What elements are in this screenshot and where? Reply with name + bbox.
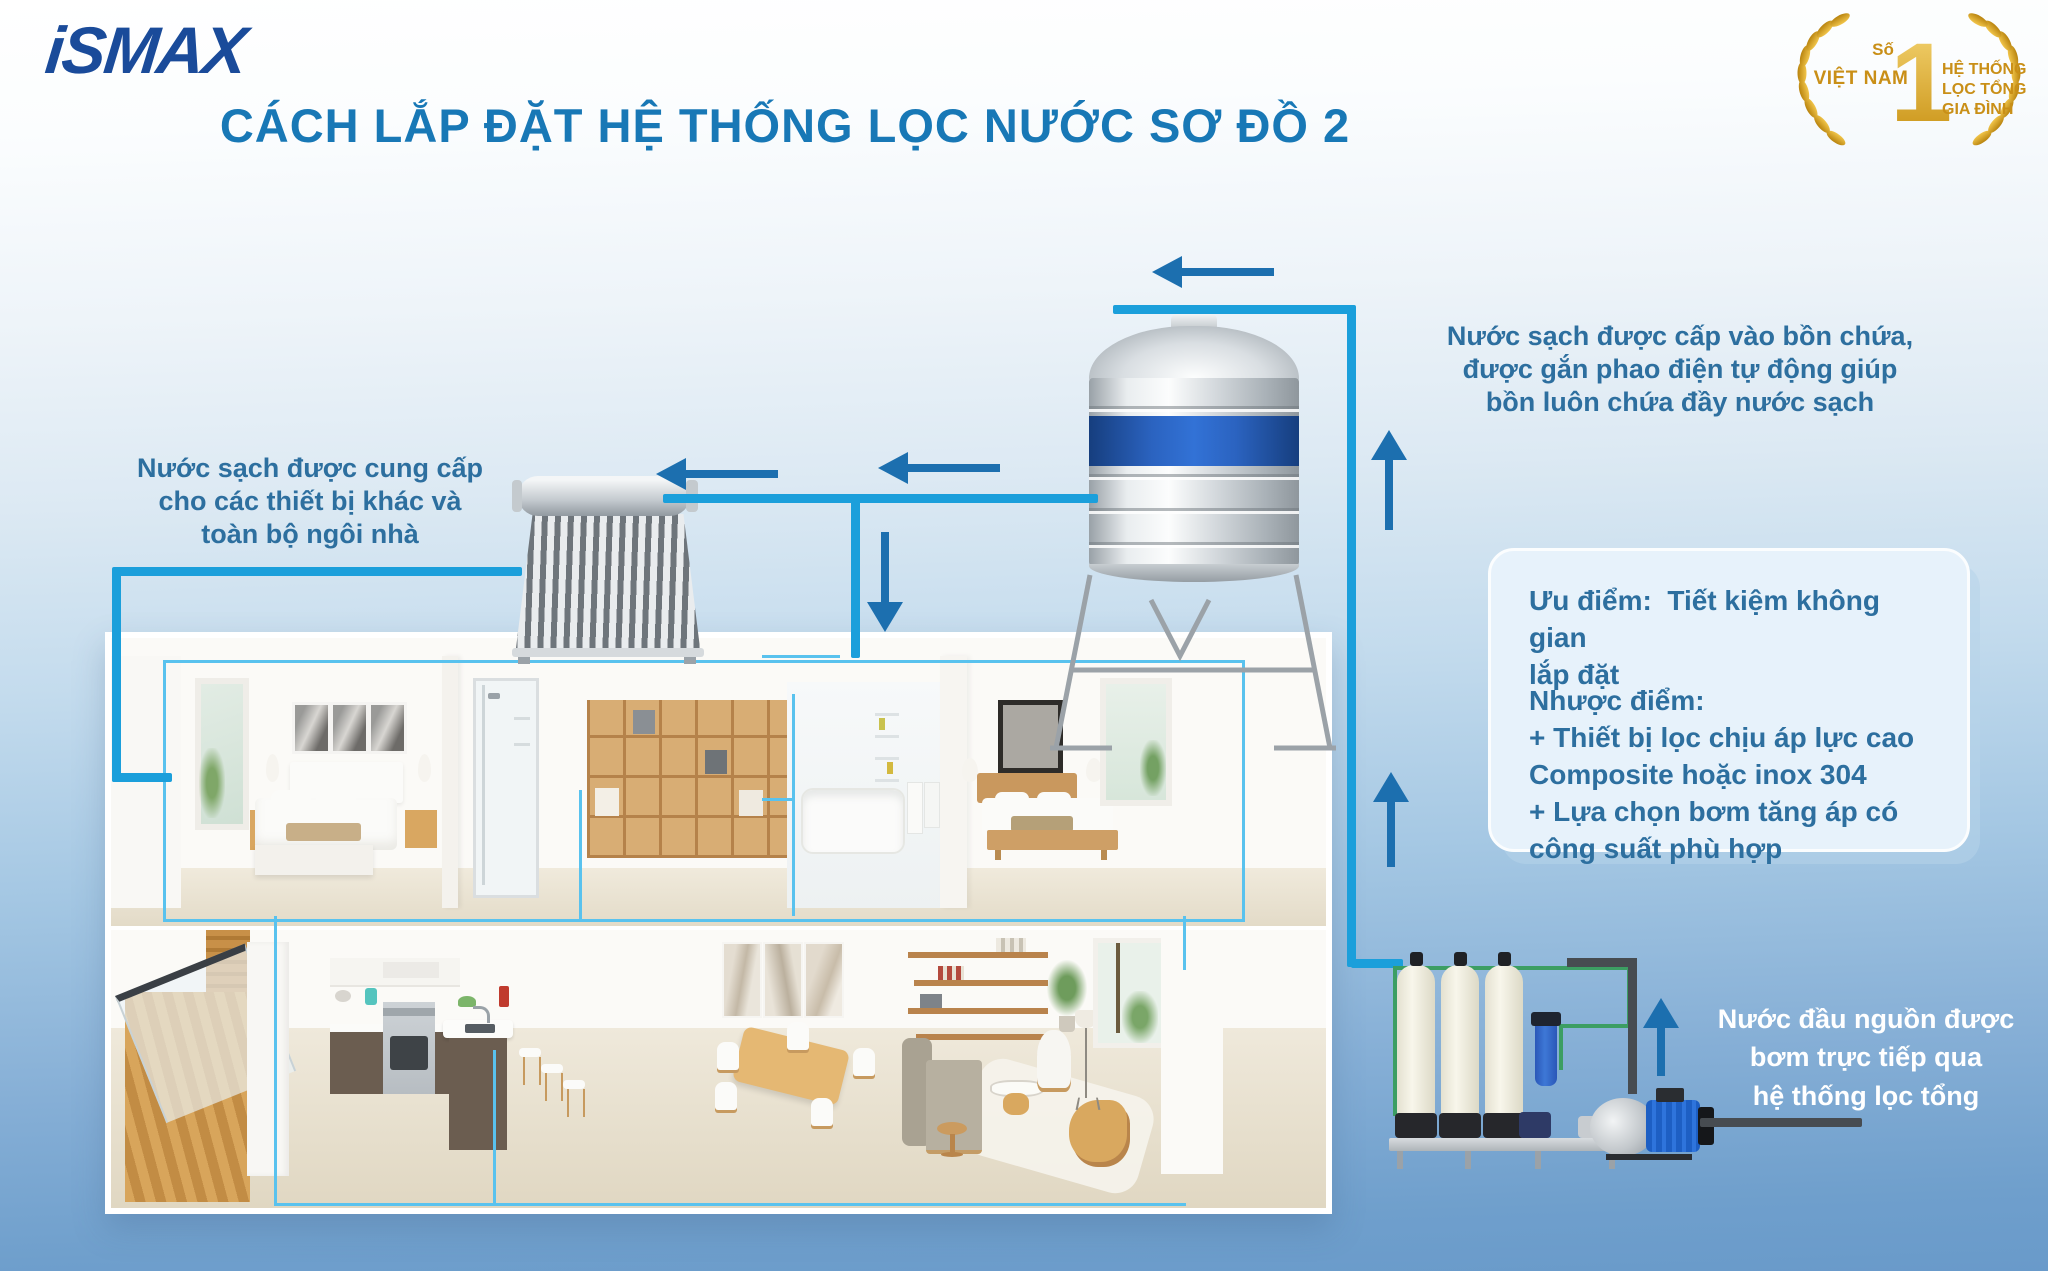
arrow-shaft — [881, 532, 889, 606]
info-box-line: Nhược điểm: — [1529, 683, 1949, 720]
callout-line — [762, 655, 840, 658]
coffee-table — [990, 1080, 1042, 1118]
dining-art — [722, 942, 762, 1018]
pump-terminal-box — [1656, 1088, 1684, 1102]
brand-logo: iSMAX — [42, 12, 249, 88]
stove-controls — [383, 1008, 435, 1016]
mini-pump — [1519, 1112, 1551, 1138]
tank-body — [1089, 378, 1299, 566]
stove-oven — [383, 1002, 435, 1094]
filter-tank-valve — [1410, 952, 1423, 966]
pipe-branch-down — [851, 494, 860, 658]
pipe-left-down — [112, 567, 121, 782]
platform-leg — [1397, 1151, 1403, 1169]
arrow-shaft — [904, 464, 1000, 472]
cartridge-filter — [1535, 1026, 1557, 1086]
side-stool — [937, 1122, 967, 1158]
annotation-source-pump: Nước đầu nguồn được bơm trực tiếp qua hệ… — [1690, 1000, 2042, 1115]
pump-pipe-dark — [1567, 958, 1637, 967]
info-box-line: Composite hoặc inox 304 — [1529, 757, 1949, 794]
page-title: CÁCH LẮP ĐẶT HỆ THỐNG LỌC NƯỚC SƠ ĐỒ 2 — [150, 98, 1420, 153]
tank-blue-band — [1089, 416, 1299, 466]
filter-tank-valve — [1454, 952, 1467, 966]
filter-tank-base — [1439, 1113, 1481, 1138]
callout-line — [493, 1050, 496, 1204]
bar-chair — [519, 1048, 543, 1088]
source-pipe-dark — [1700, 1118, 1862, 1127]
info-box-pros: Ưu điểm: Tiết kiệm không gian lắp đặt — [1529, 583, 1939, 694]
filter-pipe-green — [1559, 1024, 1631, 1028]
stool-foot — [941, 1152, 963, 1157]
bar-chair-seat — [563, 1080, 585, 1089]
pipe-left-into-house — [112, 773, 172, 782]
annotation-line: bồn luôn chứa đầy nước sạch — [1415, 386, 1945, 419]
bar-chair-legs — [545, 1073, 563, 1101]
filter-tank-base — [1395, 1113, 1437, 1138]
kitchen-island — [443, 1020, 513, 1155]
right-wall — [1161, 938, 1223, 1174]
tank-bottom-rim — [1089, 564, 1299, 582]
flow-arrow-down — [867, 532, 903, 632]
pipe-riser — [1347, 305, 1356, 967]
tank-dome — [1089, 326, 1299, 384]
info-box-line: + Lựa chọn bơm tăng áp có — [1529, 794, 1949, 831]
pump-pipe-dark — [1628, 958, 1637, 1094]
badge-right-line: LỌC TỔNG — [1942, 80, 2040, 100]
arrow-head — [878, 452, 908, 484]
flow-arrow-up — [1371, 430, 1407, 530]
shelf-decor — [920, 994, 942, 1008]
annotation-line: bơm trực tiếp qua — [1690, 1038, 2042, 1076]
heater-foot — [518, 657, 530, 664]
island-sink — [465, 1024, 495, 1033]
wall-shelves — [908, 952, 1048, 1040]
annotation-tank-inlet: Nước sạch được cấp vào bồn chứa, được gắ… — [1415, 320, 1945, 419]
flow-arrow-left — [878, 452, 1000, 484]
callout-line — [274, 916, 277, 1206]
coffee-machine — [499, 986, 509, 1007]
badge-right-text: HỆ THỐNG LỌC TỔNG GIA ĐÌNH — [1942, 60, 2040, 120]
arrow-head — [1373, 772, 1409, 802]
badge-right-line: HỆ THỐNG — [1942, 60, 2040, 80]
filter-tank — [1485, 965, 1523, 1138]
island-base — [449, 1038, 507, 1150]
callout-line — [579, 790, 582, 920]
ground-floor — [111, 930, 1326, 1208]
tree-trunk — [1116, 943, 1120, 1033]
annotation-line: toàn bộ ngôi nhà — [95, 518, 525, 551]
flow-arrow-up — [1373, 772, 1409, 867]
plant-pot — [1059, 1016, 1075, 1032]
flow-arrow-left — [656, 458, 778, 490]
info-box-line: công suất phù hợp — [1529, 831, 1949, 868]
pros-cons-info-box: Ưu điểm: Tiết kiệm không gian lắp đặt Nh… — [1488, 548, 1970, 852]
arrow-shaft — [682, 470, 778, 478]
arrow-head — [867, 602, 903, 632]
pump-feet — [1606, 1154, 1692, 1160]
island-faucet — [473, 1006, 490, 1023]
window-foliage — [1122, 991, 1158, 1043]
heater-tube-array — [516, 514, 700, 648]
lamp-pole — [1085, 1028, 1087, 1098]
arrow-head — [1371, 430, 1407, 460]
callout-line — [762, 798, 795, 801]
callout-line — [1183, 916, 1186, 970]
oven-window — [390, 1036, 428, 1070]
annotation-line: Nước sạch được cung cấp — [95, 452, 525, 485]
bar-chair-seat — [519, 1048, 541, 1057]
filter-tank — [1397, 965, 1435, 1138]
pipe-tank-outlet — [663, 494, 1098, 503]
info-box-line: + Thiết bị lọc chịu áp lực cao — [1529, 720, 1949, 757]
annotation-line: Nước sạch được cấp vào bồn chứa, — [1415, 320, 1945, 353]
bar-chair-seat — [541, 1064, 563, 1073]
bar-chair — [541, 1064, 565, 1104]
dining-chair — [811, 1098, 833, 1126]
dining-chair — [717, 1042, 739, 1070]
pipe-to-house-left — [116, 567, 522, 576]
annotation-line: được gắn phao điện tự động giúp — [1415, 353, 1945, 386]
dining-chair — [787, 1022, 809, 1050]
shelf-board — [908, 1008, 1048, 1014]
counter-kettle — [335, 990, 351, 1002]
flow-arrow-left — [1152, 256, 1274, 288]
shelf-board — [908, 952, 1048, 958]
dining-art — [763, 942, 803, 1018]
award-badge: Số VIỆT NAM 1 HỆ THỐNG LỌC TỔNG GIA ĐÌNH — [1778, 10, 2040, 160]
kitchen-tall-cabinet — [247, 942, 289, 1176]
bar-chair-legs — [567, 1089, 585, 1117]
pipe-tank-inlet — [1113, 305, 1355, 314]
plant-leaves — [1047, 960, 1087, 1016]
shelf-books — [938, 966, 964, 980]
arrow-head — [656, 458, 686, 490]
arrow-head — [1152, 256, 1182, 288]
counter-teal-appliance — [365, 988, 377, 1005]
arrow-shaft — [1385, 456, 1393, 530]
bar-chair-legs — [523, 1057, 541, 1085]
callout-line — [274, 1203, 1186, 1206]
water-storage-tank — [1083, 326, 1305, 606]
annotation-line: Nước đầu nguồn được — [1690, 1000, 2042, 1038]
shelf-books — [996, 938, 1026, 952]
lamp-tripod — [1076, 1098, 1101, 1110]
dining-chair — [853, 1048, 875, 1076]
annotation-line: cho các thiết bị khác và — [95, 485, 525, 518]
annotation-house-supply: Nước sạch được cung cấp cho các thiết bị… — [95, 452, 525, 551]
annotation-line: hệ thống lọc tổng — [1690, 1077, 2042, 1115]
living-window — [1093, 938, 1167, 1048]
platform-leg — [1465, 1151, 1471, 1169]
filter-tank — [1441, 965, 1479, 1138]
arrow-shaft — [1178, 268, 1274, 276]
white-armchair — [1037, 1030, 1071, 1088]
info-box-cons: Nhược điểm: + Thiết bị lọc chịu áp lực c… — [1529, 683, 1949, 868]
heater-base-rail — [512, 648, 704, 657]
stool-stem — [950, 1134, 955, 1152]
filter-pipe-green — [1559, 1024, 1563, 1070]
bar-chair — [563, 1080, 587, 1120]
shelf-board — [914, 980, 1048, 986]
dining-chair — [715, 1082, 737, 1110]
dining-art — [804, 942, 844, 1018]
arrow-shaft — [1387, 798, 1395, 867]
coffee-table-base — [1003, 1093, 1029, 1115]
heater-foot — [684, 657, 696, 664]
cartridge-filter-cap — [1531, 1012, 1561, 1026]
badge-right-line: GIA ĐÌNH — [1942, 100, 2040, 120]
filter-tank-valve — [1498, 952, 1511, 966]
platform-leg — [1535, 1151, 1541, 1169]
info-box-line: Ưu điểm: Tiết kiệm không gian — [1529, 583, 1939, 657]
callout-line — [792, 694, 795, 916]
range-hood — [383, 962, 439, 978]
